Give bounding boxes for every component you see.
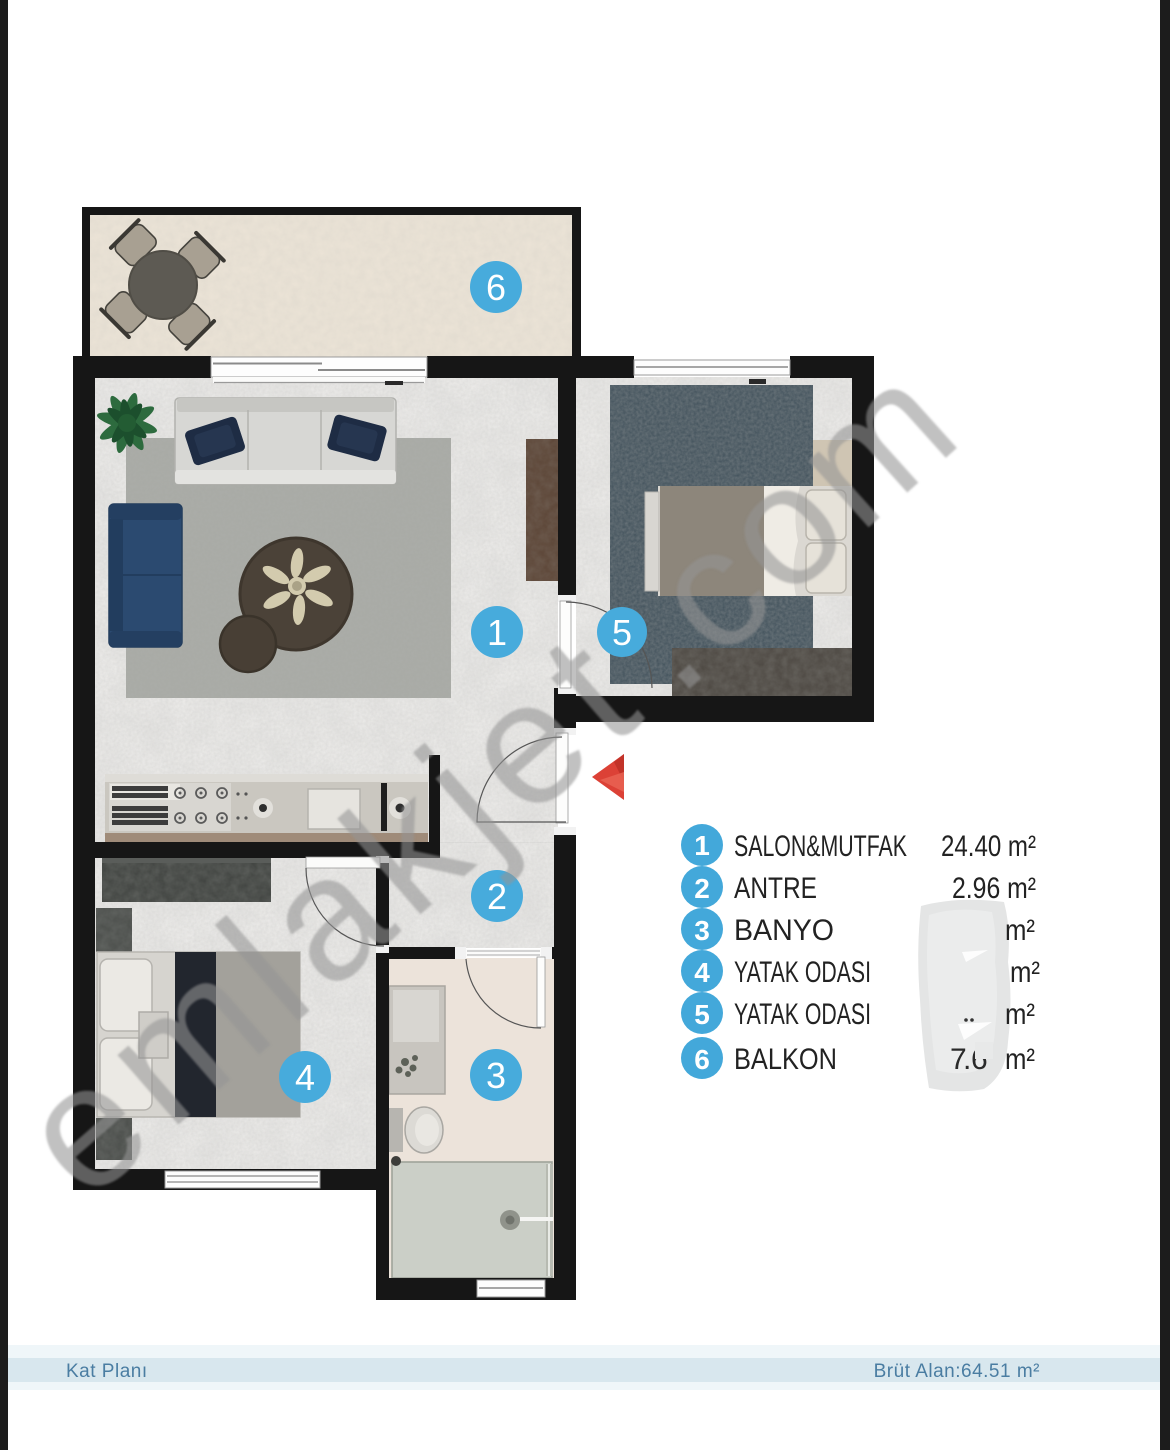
svg-text:2: 2 [694, 873, 710, 904]
svg-text:m²: m² [1010, 956, 1040, 989]
svg-text:6: 6 [694, 1044, 710, 1075]
svg-text:m²: m² [1005, 914, 1035, 947]
svg-text:YATAK ODASI: YATAK ODASI [734, 956, 871, 989]
svg-text:6: 6 [486, 267, 506, 308]
svg-text:m²: m² [1005, 1043, 1035, 1076]
svg-text:1: 1 [694, 830, 710, 861]
svg-text:Brüt Alan:64.51 m²: Brüt Alan:64.51 m² [874, 1361, 1040, 1382]
svg-text:YATAK ODASI: YATAK ODASI [734, 998, 871, 1031]
svg-text:Kat Planı: Kat Planı [66, 1361, 148, 1382]
svg-text:ANTRE: ANTRE [734, 872, 817, 905]
svg-text:3: 3 [486, 1055, 506, 1096]
svg-text:m²: m² [1005, 998, 1035, 1031]
svg-text:SALON&MUTFAK: SALON&MUTFAK [734, 830, 907, 863]
svg-text:3: 3 [694, 915, 710, 946]
svg-text:BALKON: BALKON [734, 1043, 837, 1076]
svg-text:5: 5 [694, 999, 710, 1030]
svg-text:BANYO: BANYO [734, 914, 834, 947]
svg-text:4: 4 [694, 957, 710, 988]
svg-text:24.40 m²: 24.40 m² [941, 830, 1036, 863]
